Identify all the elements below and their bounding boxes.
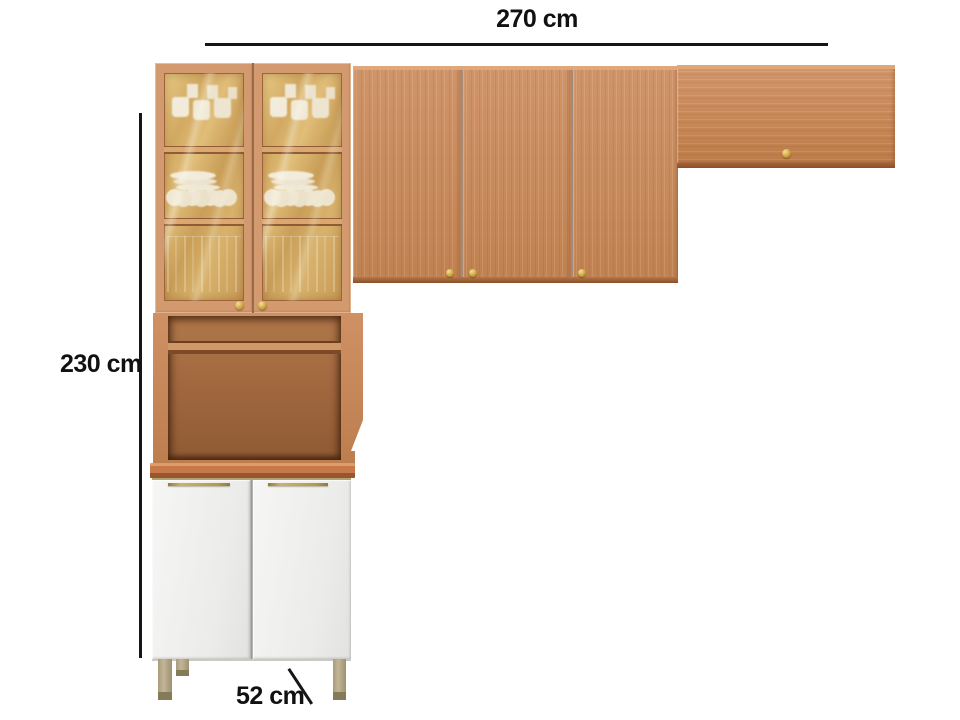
base-door-left (152, 480, 250, 659)
base-door-right (253, 480, 351, 659)
gold-knob (258, 301, 267, 310)
leg-foot (333, 692, 346, 700)
height-dimension-label: 230 cm (60, 352, 142, 377)
door-handle (168, 483, 230, 486)
wall-door-3 (573, 66, 678, 283)
corner-cutout (351, 420, 363, 451)
door-seam (461, 66, 463, 283)
shelf-cavity (168, 316, 341, 460)
glass-sheen (262, 73, 342, 301)
gold-knob (235, 301, 244, 310)
height-dimension-line (139, 113, 142, 658)
width-dimension-line (205, 43, 828, 46)
glass-hutch (155, 63, 351, 313)
glass-pane (262, 73, 342, 301)
wall-door-2 (463, 66, 571, 283)
gold-knob (578, 269, 586, 277)
base-door-seam (250, 480, 253, 659)
glass-door-right (253, 63, 351, 313)
cabinet-top-edge (353, 66, 678, 70)
cabinet-top-edge (677, 65, 895, 69)
gold-knob (469, 269, 477, 277)
countertop (150, 463, 355, 478)
cabinet-leg (333, 659, 346, 700)
depth-dimension-label: 52 cm (236, 684, 304, 709)
furniture-dimension-diagram: 270 cm 230 cm 52 cm (0, 0, 960, 720)
door-seam (571, 66, 573, 283)
shelf-board (168, 341, 341, 354)
leg-foot (158, 692, 172, 700)
door-handle (268, 483, 328, 486)
gold-knob (446, 269, 454, 277)
leg-foot (176, 670, 189, 676)
base-cabinet (152, 480, 351, 659)
cabinet-leg (176, 659, 189, 676)
gold-knob (782, 149, 791, 158)
wall-door-1 (353, 66, 461, 283)
glass-door-left (155, 63, 253, 313)
open-shelf-section (153, 313, 363, 465)
wall-cabinet-three-door (353, 66, 678, 283)
wall-cabinet-single-door (677, 65, 895, 168)
glass-pane (164, 73, 244, 301)
cabinet-bottom-edge (353, 277, 678, 283)
cabinet-leg (158, 659, 172, 700)
corner-cutout (355, 451, 363, 465)
door-seam (252, 63, 254, 313)
cabinet-bottom-edge (677, 163, 895, 168)
glass-sheen (164, 73, 244, 301)
width-dimension-label: 270 cm (496, 7, 578, 32)
